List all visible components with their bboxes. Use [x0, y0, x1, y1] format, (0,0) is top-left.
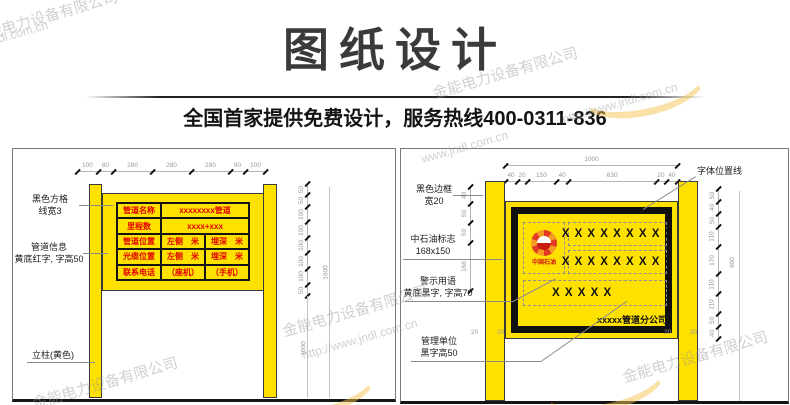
- dim-label: 80: [230, 161, 245, 171]
- callout-text: 黄底红字, 字高50: [13, 253, 85, 265]
- row-value: xxxx+xxx: [160, 219, 248, 232]
- dim-label: 20: [664, 329, 671, 336]
- dim-label: 100: [77, 161, 98, 171]
- right-sign-post-right: [678, 181, 698, 401]
- table-row: 光缆位置 左侧 米 埋深 米: [118, 248, 248, 263]
- callout-text: 管道信息: [13, 241, 85, 253]
- right-total-width-dim: 1000: [505, 155, 678, 166]
- logo-text: 中国石油: [532, 257, 556, 266]
- callout-text: 字体位置线: [697, 165, 777, 177]
- design-page: 金能电力设备有限公司 www.jndl.com.cn 金能电力设备有限公司 ht…: [0, 0, 790, 405]
- dimension-line: [739, 191, 740, 401]
- callout-text: 168x150: [401, 245, 465, 257]
- dim-label: 40: [709, 329, 716, 336]
- callout-text: 线宽3: [19, 205, 81, 217]
- callout-text: 中石油标志: [401, 233, 465, 245]
- left-right-dimension-chain: 50 50 100 100 100 100 100 50: [296, 184, 308, 296]
- service-hotline-text: 全国首家提供免费设计，服务热线400-0311-836: [0, 102, 790, 131]
- dim-label: 20: [517, 171, 527, 181]
- right-sign-board: 中国石油 X X X X X X X X X X X X X X X X X X…: [505, 201, 678, 339]
- dim-label: 20: [497, 329, 504, 336]
- row-label: 管道位置: [118, 235, 160, 248]
- right-right-dimension-chain: 50 40 50 110 170 110 110 50 40: [707, 189, 719, 339]
- row-value: （座机）: [160, 266, 204, 279]
- dim-label: 280: [152, 161, 191, 171]
- callout-black-grid: 黑色方格 线宽3: [19, 193, 81, 217]
- callout-management-unit: 管理单位 黑字高50: [409, 335, 469, 359]
- below-post-dim: 1000: [301, 341, 308, 355]
- dim-label: 110: [709, 299, 716, 309]
- callout-text: 黄底黑字, 字高70: [401, 287, 475, 299]
- dim-label: 110: [709, 232, 716, 242]
- leader-line: [405, 301, 513, 302]
- total-height-dim: 1600: [323, 265, 330, 279]
- right-top-dimension-chain: 40 20 150 40 630 20 40: [505, 171, 678, 182]
- table-row: 联系电话 （座机） （手机）: [118, 264, 248, 279]
- dim-label: 170: [709, 255, 716, 266]
- row-value: 左侧 米: [160, 235, 204, 248]
- page-title: 图纸设计: [0, 14, 790, 80]
- dim-label: 100: [298, 209, 305, 220]
- right-sign-post-left: [485, 181, 505, 401]
- dim-label: 20: [471, 329, 478, 336]
- row-label: 里程数: [118, 219, 160, 232]
- dim-label: 50: [461, 210, 468, 217]
- logo-core: [537, 236, 551, 250]
- row-value: xxxxxxxx管道: [160, 204, 248, 217]
- placeholder-text: X X X X X X X X X: [562, 228, 674, 240]
- row-value: 左侧 米: [160, 250, 204, 263]
- left-sign-board: 管道名称 xxxxxxxx管道 里程数 xxxx+xxx 管道位置 左侧 米 埋…: [102, 193, 264, 291]
- table-row: 管道名称 xxxxxxxx管道: [118, 204, 248, 217]
- dim-label: 100: [298, 240, 305, 251]
- dim-label: 20: [656, 171, 666, 181]
- callout-warning: 警示用语 黄底黑字, 字高70: [401, 275, 475, 299]
- left-diagram-panel: 100 80 280 280 280 80 100 管道名称 xxxxxxxx管…: [12, 148, 396, 402]
- dim-label: 40: [556, 171, 568, 181]
- row-label: 联系电话: [118, 266, 160, 279]
- callout-text: 黑色方格: [19, 193, 81, 205]
- row-label: 管道名称: [118, 204, 160, 217]
- table-row: 里程数 xxxx+xxx: [118, 217, 248, 232]
- dim-label: 100: [298, 271, 305, 282]
- table-row: 管道位置 左侧 米 埋深 米: [118, 233, 248, 248]
- dim-label: 630: [568, 171, 656, 181]
- title-divider: [85, 96, 705, 98]
- row-value: 埋深 米: [204, 235, 248, 248]
- callout-pipeline-info: 管道信息 黄底红字, 字高50: [13, 241, 85, 265]
- callout-post: 立柱(黄色): [25, 349, 81, 361]
- leader-line: [403, 259, 503, 260]
- dim-label: 280: [113, 161, 152, 171]
- dim-label: 168: [461, 261, 468, 272]
- dim-label: 50: [298, 186, 305, 193]
- leader-line: [27, 362, 95, 363]
- text-row-2: X X X X X X X X X: [568, 250, 667, 274]
- placeholder-text: X X X X X X X X X: [562, 256, 674, 268]
- row-label: 光缆位置: [118, 250, 160, 263]
- dim-label: 100: [298, 256, 305, 267]
- petrochina-logo: 中国石油: [523, 222, 565, 274]
- left-sign-post-right: [263, 184, 277, 398]
- callout-text: 警示用语: [401, 275, 475, 287]
- petrochina-sun-icon: [531, 230, 557, 256]
- left-top-dimension-chain: 100 80 280 280 280 80 100: [77, 161, 266, 172]
- callout-text: 黑字高50: [409, 347, 469, 359]
- dim-label: 80: [98, 161, 113, 171]
- dim-label: 50: [298, 287, 305, 294]
- text-row-1: X X X X X X X X X: [568, 222, 667, 246]
- dim-label: 50: [709, 192, 716, 199]
- left-sign-post-left: [89, 184, 102, 398]
- dim-label: 100: [245, 161, 266, 171]
- callout-text: 立柱(黄色): [25, 349, 81, 361]
- dim-label: 20: [690, 329, 697, 336]
- dim-label: 50: [298, 197, 305, 204]
- callout-font-position-line: 字体位置线: [697, 165, 777, 177]
- placeholder-text: X X X X X: [552, 287, 612, 299]
- callout-text: 管理单位: [409, 335, 469, 347]
- callout-text: 黑色边框: [405, 183, 463, 195]
- text-row-4: xxxxx管道分公司: [523, 310, 667, 328]
- dim-label: 110: [709, 279, 716, 289]
- callout-text: 宽20: [405, 195, 463, 207]
- dim-label: 40: [666, 171, 678, 181]
- board-height-dim: 600: [729, 257, 736, 268]
- leader-line: [453, 195, 483, 196]
- dim-label: 40: [505, 171, 517, 181]
- dim-label: 50: [709, 317, 716, 324]
- leader-line: [83, 253, 108, 254]
- pipeline-sign-table: 管道名称 xxxxxxxx管道 里程数 xxxx+xxx 管道位置 左侧 米 埋…: [116, 202, 250, 281]
- dim-label: 40: [709, 204, 716, 211]
- callout-logo: 中石油标志 168x150: [401, 233, 465, 257]
- row-value: （手机）: [204, 266, 248, 279]
- dim-label: 50: [709, 217, 716, 224]
- dim-label: 280: [191, 161, 230, 171]
- dimension-line: [329, 187, 330, 398]
- leader-line: [79, 205, 113, 206]
- leader-line: [411, 361, 541, 362]
- dim-label: 100: [298, 225, 305, 236]
- dim-label: 1000: [505, 155, 678, 165]
- row-value: 埋深 米: [204, 250, 248, 263]
- right-diagram-panel: 1000 40 20 150 40 630 20 40 中国石油 X X X X…: [400, 148, 789, 404]
- dim-label: 150: [527, 171, 556, 181]
